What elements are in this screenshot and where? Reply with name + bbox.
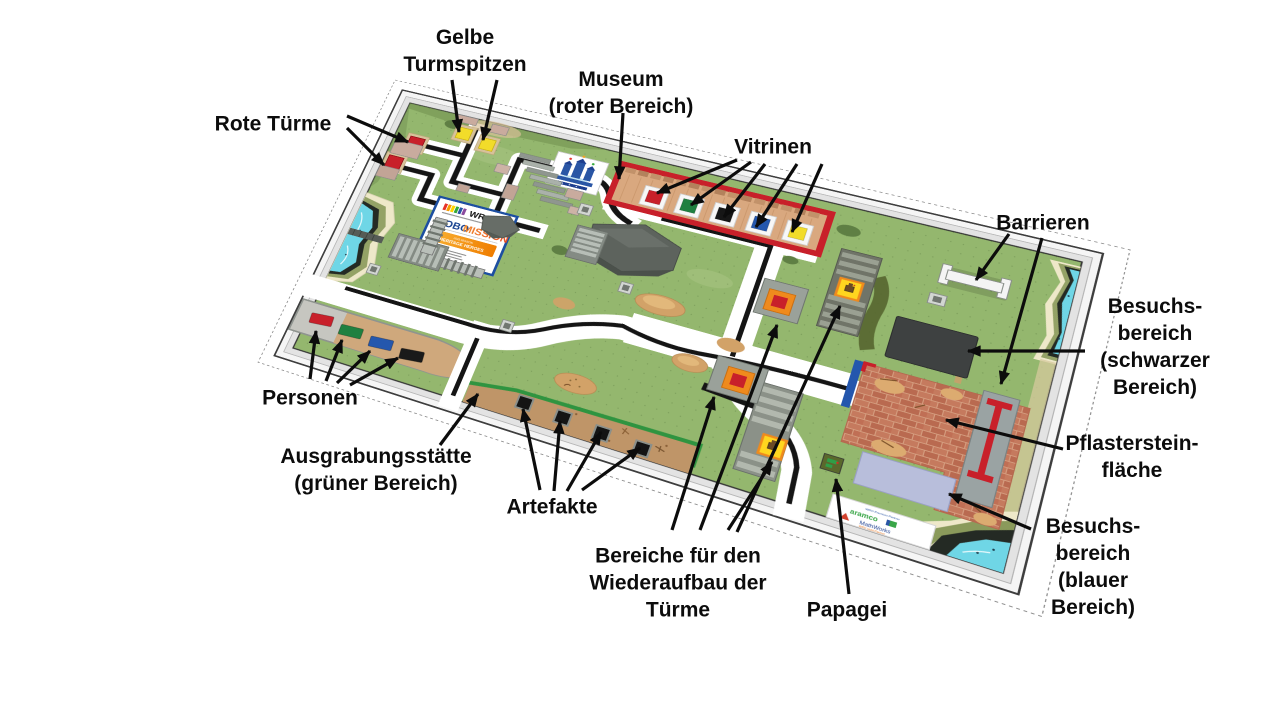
label-vitrinen: Vitrinen — [734, 134, 812, 161]
figure-canvas: WRO ROBO MISSION 2025 SEASON HERITAGE HE… — [0, 0, 1280, 720]
label-wiederaufbau: Bereiche für den Wiederaufbau der Türme — [589, 543, 766, 624]
label-gelbe-turmspitzen: Gelbe Turmspitzen — [403, 24, 526, 78]
label-museum: Museum (roter Bereich) — [549, 66, 694, 120]
label-artefakte: Artefakte — [506, 494, 597, 521]
label-barrieren: Barrieren — [996, 210, 1089, 237]
label-personen: Personen — [262, 385, 358, 412]
label-rote-tuerme: Rote Türme — [215, 111, 332, 138]
label-pflastersteinflaeche: Pflasterstein- fläche — [1065, 430, 1198, 484]
label-ausgrabungsstaette: Ausgrabungsstätte (grüner Bereich) — [280, 443, 471, 497]
label-papagei: Papagei — [807, 597, 888, 624]
label-besuchsbereich-blau: Besuchs- bereich (blauer Bereich) — [1046, 513, 1141, 621]
label-besuchsbereich-schwarz: Besuchs- bereich (schwarzer Bereich) — [1100, 293, 1210, 401]
